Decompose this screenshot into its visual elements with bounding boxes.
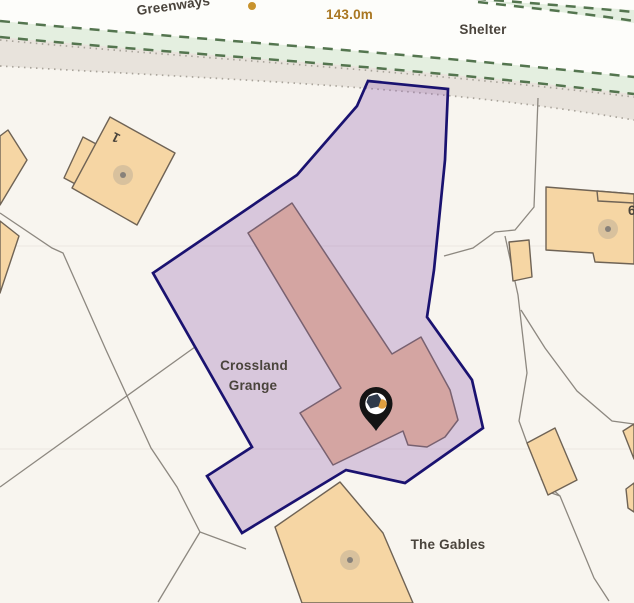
map-canvas[interactable]: Greenways 143.0m Shelter Crossland Grang… (0, 0, 634, 603)
building-marker-dot (340, 550, 360, 570)
map-viewport: Greenways 143.0m Shelter Crossland Grang… (0, 0, 634, 603)
house-number-partial-label: 6 (628, 203, 634, 218)
building-marker-dot (598, 219, 618, 239)
building-marker-dot (113, 165, 133, 185)
neighbor-property-label: The Gables (411, 537, 486, 552)
property-name-label-line2: Grange (229, 378, 278, 393)
spot-height-dot (248, 2, 256, 10)
shelter-label: Shelter (459, 22, 507, 37)
spot-height-label: 143.0m (326, 7, 373, 22)
building-right-small (509, 240, 532, 281)
property-name-label-line1: Crossland (220, 358, 288, 373)
